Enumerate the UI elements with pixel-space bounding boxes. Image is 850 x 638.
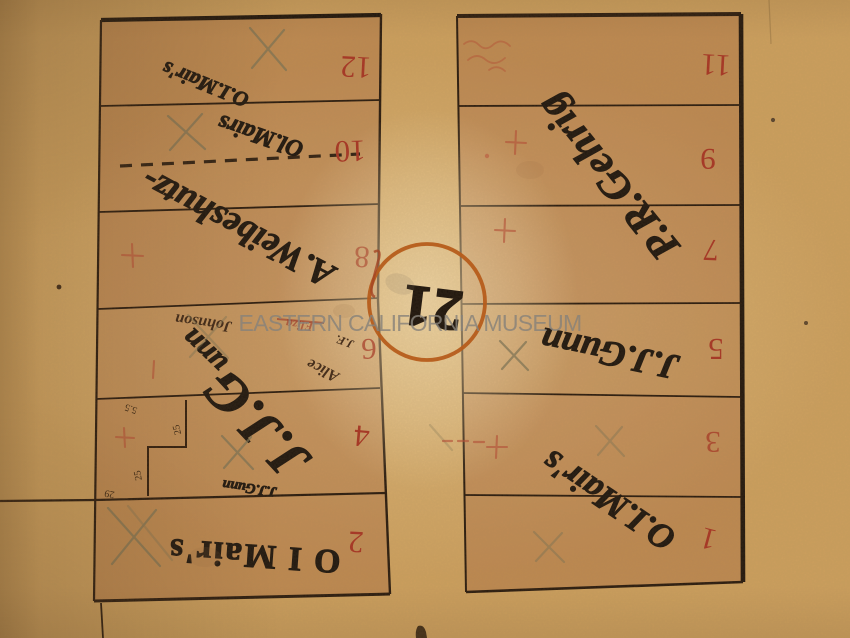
svg-text:EASTERN CALIFORNIA MUSEUM: EASTERN CALIFORNIA MUSEUM (239, 310, 582, 336)
